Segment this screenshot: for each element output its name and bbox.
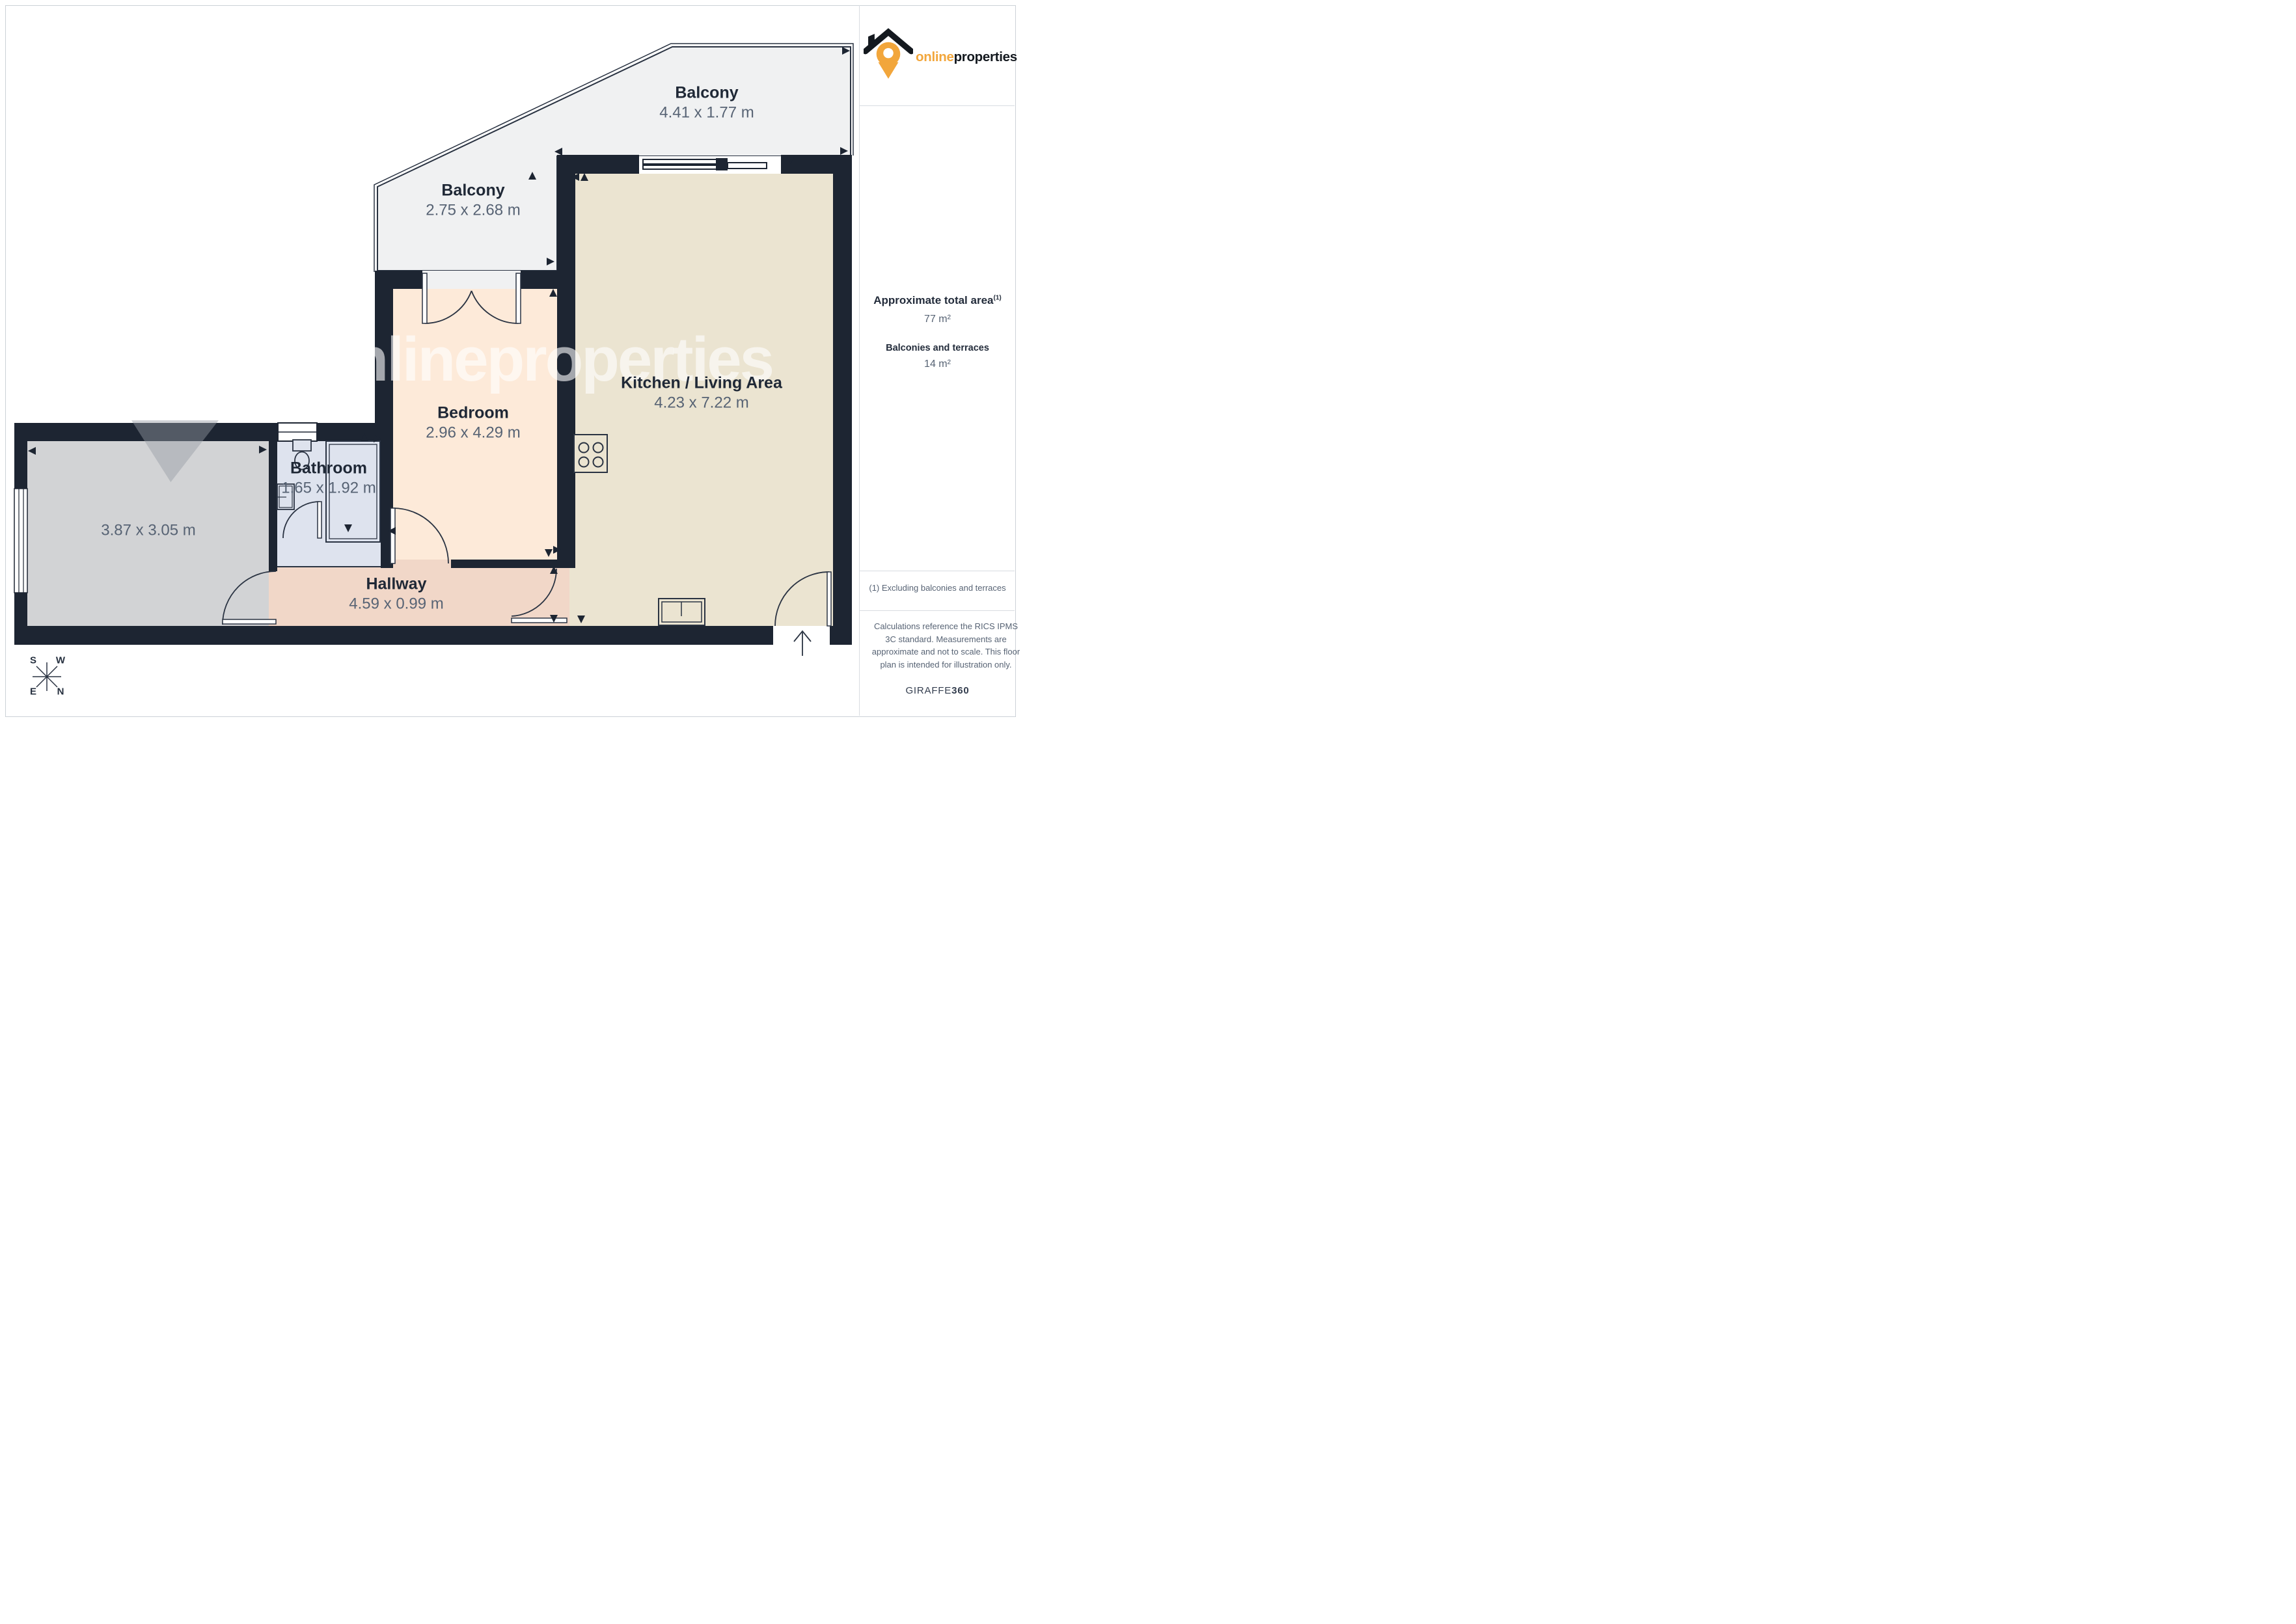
- camera-marker-icon: [787, 156, 795, 164]
- camera-marker-icon: [550, 615, 558, 623]
- room-label-bedroom: Bedroom 2.96 x 4.29 m: [426, 403, 520, 443]
- camera-marker-icon: [842, 47, 850, 55]
- footnote-divider-bottom: [860, 610, 1015, 611]
- disclaimer: Calculations reference the RICS IPMS 3C …: [860, 620, 1020, 671]
- room-label-hallway: Hallway 4.59 x 0.99 m: [349, 575, 443, 614]
- room-label-balcony-top: Balcony 4.41 x 1.77 m: [659, 83, 754, 123]
- camera-marker-icon: [547, 258, 554, 265]
- room-window: [14, 489, 27, 593]
- entrance-arrow-icon: [794, 631, 811, 656]
- camera-marker-icon: [361, 433, 368, 441]
- camera-marker-icon: [581, 173, 588, 181]
- balconies-title: Balconies and terraces: [860, 343, 1015, 353]
- area-summary: Approximate total area(1) 77 m² Balconie…: [860, 294, 1015, 370]
- camera-marker-icon: [374, 435, 381, 442]
- camera-marker-icon: [549, 289, 557, 297]
- camera-marker-icon: [259, 446, 267, 453]
- compass-west: W: [56, 655, 65, 666]
- stove: [574, 435, 607, 472]
- giraffe360-brand: GIRAFFE360: [860, 685, 1015, 696]
- room-label-bathroom: Bathroom 1.65 x 1.92 m: [281, 459, 376, 498]
- camera-marker-icon: [840, 147, 848, 155]
- floor-plan-page: onlineproperties Balcony 4.41 x 1.77 m B…: [0, 0, 1020, 722]
- logo-divider: [860, 105, 1015, 106]
- camera-marker-icon: [554, 148, 562, 156]
- camera-marker-icon: [545, 549, 553, 557]
- camera-marker-icon: [528, 172, 536, 180]
- footnote-marker: (1): [994, 294, 1002, 301]
- footnote-divider-top: [860, 571, 1015, 571]
- camera-marker-icon: [571, 173, 579, 181]
- total-area-value: 77 m²: [860, 314, 1015, 325]
- logo: onlineproperties: [864, 26, 1011, 83]
- kitchen-window: [639, 156, 781, 174]
- french-door-opening: [422, 271, 521, 289]
- logo-house-pin-icon: [864, 26, 913, 82]
- room-label-storage: 3.87 x 3.05 m: [101, 521, 195, 541]
- balconies-value: 14 m²: [860, 359, 1015, 370]
- camera-marker-icon: [344, 524, 352, 532]
- camera-marker-icon: [28, 447, 36, 455]
- camera-marker-icon: [577, 616, 585, 623]
- bathroom-window: [278, 423, 317, 441]
- logo-text: onlineproperties: [916, 49, 1017, 65]
- room-label-balcony-left: Balcony 2.75 x 2.68 m: [426, 181, 520, 221]
- camera-marker-icon: [388, 527, 396, 535]
- camera-marker-icon: [553, 546, 561, 554]
- footnote: (1) Excluding balconies and terraces: [860, 583, 1015, 593]
- total-area-title: Approximate total area(1): [860, 294, 1015, 307]
- compass-east: E: [30, 686, 36, 697]
- compass-north: N: [57, 686, 64, 697]
- compass-south: S: [30, 655, 36, 666]
- camera-marker-icon: [550, 566, 558, 574]
- room-label-kitchen: Kitchen / Living Area 4.23 x 7.22 m: [621, 373, 782, 413]
